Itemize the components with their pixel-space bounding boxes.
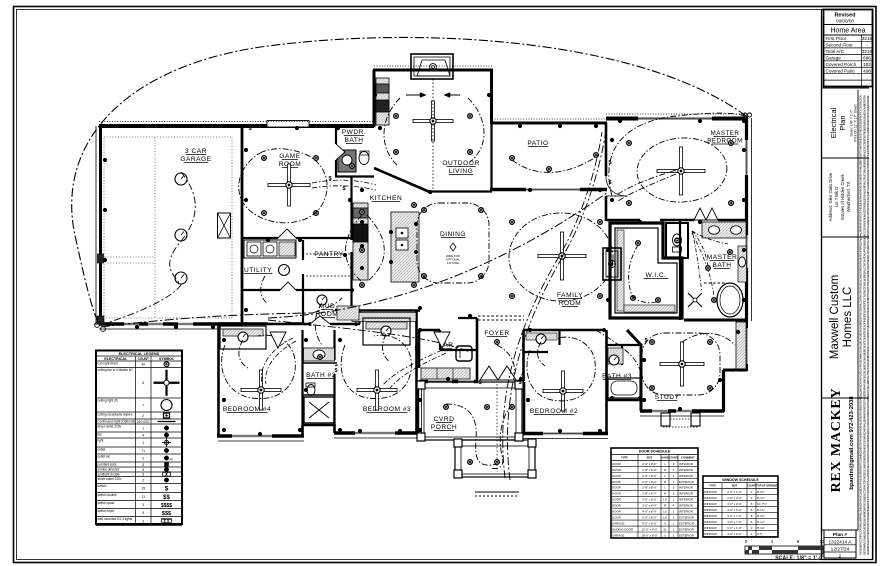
svg-text:ceiling light 30: ceiling light 30 bbox=[98, 399, 118, 403]
svg-text:9: 9 bbox=[142, 468, 144, 472]
svg-text:.: . bbox=[826, 81, 827, 86]
svg-text:DOOR: DOOR bbox=[612, 515, 621, 519]
svg-text:6: 6 bbox=[142, 381, 144, 385]
svg-text:11: 11 bbox=[141, 495, 145, 499]
svg-text:SIZE: SIZE bbox=[647, 456, 653, 460]
svg-text:$$$: $$$ bbox=[162, 511, 171, 517]
svg-text:498: 498 bbox=[863, 68, 871, 73]
svg-text:ALL BE BROUGHT TO THE ATTENTIO: ALL BE BROUGHT TO THE ATTENTION OF THE D… bbox=[866, 95, 870, 555]
svg-text:.: . bbox=[866, 81, 867, 86]
svg-text:3 CAR: 3 CAR bbox=[185, 148, 207, 155]
svg-text:DOOR: DOOR bbox=[612, 510, 621, 514]
svg-text:30: 30 bbox=[141, 363, 145, 367]
svg-text:$$: $$ bbox=[163, 495, 170, 501]
svg-text:LX: LX bbox=[663, 515, 667, 519]
svg-text:BEDROOM #4: BEDROOM #4 bbox=[223, 406, 271, 413]
svg-text:DINING: DINING bbox=[440, 231, 466, 238]
svg-text:$: $ bbox=[608, 180, 611, 186]
svg-text:INTERIOR: INTERIOR bbox=[679, 510, 693, 514]
svg-text:TOP OF OPENING: TOP OF OPENING bbox=[756, 485, 777, 488]
svg-text:BATH: BATH bbox=[712, 262, 731, 269]
svg-text:WINDOW: WINDOW bbox=[704, 496, 717, 500]
svg-text:ceiling fan w 4 blades 60: ceiling fan w 4 blades 60 bbox=[98, 368, 133, 372]
svg-text:KITCHEN: KITCHEN bbox=[370, 195, 402, 202]
svg-text:3'-0" x 5'-0": 3'-0" x 5'-0" bbox=[727, 508, 742, 512]
svg-text:BATH #2: BATH #2 bbox=[306, 372, 336, 379]
svg-text:$: $ bbox=[308, 322, 311, 328]
svg-text:$: $ bbox=[518, 380, 521, 386]
svg-text:3'-0" x 8'-0": 3'-0" x 8'-0" bbox=[642, 498, 657, 502]
svg-text:WINDOW: WINDOW bbox=[704, 508, 717, 512]
svg-text:W.I.C.: W.I.C. bbox=[646, 272, 667, 279]
svg-text:COUNT: COUNT bbox=[669, 456, 679, 460]
svg-text:spotlight double: spotlight double bbox=[98, 473, 121, 477]
svg-text:Total A/C: Total A/C bbox=[826, 49, 845, 54]
svg-text:pendant cube: pendant cube bbox=[98, 463, 118, 467]
svg-text:SIZE: SIZE bbox=[732, 485, 738, 488]
svg-text:Maxwell Custom: Maxwell Custom bbox=[829, 275, 841, 359]
svg-text:can light 6inch: can light 6inch bbox=[98, 362, 119, 366]
svg-text:BEDROOM #3: BEDROOM #3 bbox=[363, 406, 411, 413]
svg-text:2'-8" x 8'-0": 2'-8" x 8'-0" bbox=[642, 486, 657, 490]
svg-text:8'-1¾": 8'-1¾" bbox=[757, 496, 765, 500]
svg-text:12'-0" x 8'-0": 12'-0" x 8'-0" bbox=[641, 527, 657, 531]
svg-text:Weatherford, TX: Weatherford, TX bbox=[846, 182, 851, 213]
svg-text:4'-0" x 8'-0": 4'-0" x 8'-0" bbox=[642, 510, 657, 514]
svg-text:WINDOW: WINDOW bbox=[704, 520, 717, 524]
svg-text:BATH: BATH bbox=[344, 137, 363, 144]
svg-text:SL: SL bbox=[663, 527, 667, 531]
svg-text:2'-8" x 8'-0": 2'-8" x 8'-0" bbox=[642, 474, 657, 478]
svg-text:4'-6" x 7'-0": 4'-6" x 7'-0" bbox=[727, 520, 742, 524]
svg-text:00/00/00: 00/00/00 bbox=[836, 19, 854, 24]
svg-text:DOOR: DOOR bbox=[612, 462, 621, 466]
svg-text:First Floor: First Floor bbox=[826, 36, 847, 41]
svg-text:outlet: outlet bbox=[98, 448, 106, 452]
svg-text:bpardm@gmail.com 972-423-20: bpardm@gmail.com 972-423-2038 bbox=[849, 396, 855, 490]
svg-text:DOOR: DOOR bbox=[612, 480, 621, 484]
svg-text:$: $ bbox=[478, 380, 481, 386]
svg-text:2: 2 bbox=[142, 414, 144, 418]
svg-text:Estates of Hidden Creek: Estates of Hidden Creek bbox=[840, 173, 845, 219]
svg-text:Second Floor: Second Floor bbox=[826, 43, 854, 48]
svg-text:EXTERIOR: EXTERIOR bbox=[679, 515, 694, 519]
svg-text:686: 686 bbox=[863, 56, 871, 61]
svg-text:WINDOW: WINDOW bbox=[704, 514, 717, 518]
svg-text:R: R bbox=[664, 468, 666, 472]
svg-text:Electrical: Electrical bbox=[829, 107, 838, 138]
svg-text:INTERIOR: INTERIOR bbox=[679, 468, 693, 472]
svg-text:LX: LX bbox=[663, 510, 667, 514]
svg-text:CVRD: CVRD bbox=[434, 416, 455, 423]
svg-text:Covered Porch: Covered Porch bbox=[826, 62, 857, 67]
svg-text:LX: LX bbox=[663, 498, 667, 502]
svg-text:EXTERIOR: EXTERIOR bbox=[679, 521, 694, 525]
svg-text:MASTER: MASTER bbox=[707, 254, 737, 261]
svg-text:$: $ bbox=[602, 328, 605, 334]
svg-text:switch triple: switch triple bbox=[98, 509, 115, 513]
svg-text:3: 3 bbox=[142, 519, 144, 523]
svg-text:8'-1¾": 8'-1¾" bbox=[757, 514, 765, 518]
svg-text:2'-6" x 2'-0": 2'-6" x 2'-0" bbox=[727, 496, 742, 500]
svg-text:12/27/24: 12/27/24 bbox=[831, 547, 850, 553]
svg-text:8'-1¾": 8'-1¾" bbox=[757, 526, 765, 530]
svg-text:3: 3 bbox=[142, 503, 144, 507]
svg-text:Plan #: Plan # bbox=[833, 532, 847, 538]
svg-text:.: . bbox=[826, 75, 827, 80]
svg-text:INTERIOR: INTERIOR bbox=[679, 504, 693, 508]
svg-text:240.000': 240.000' bbox=[137, 420, 150, 424]
svg-text:8'-1¾": 8'-1¾" bbox=[757, 520, 765, 524]
svg-text:DOOR: DOOR bbox=[612, 492, 621, 496]
svg-text:THE GENERAL CONTRACTOR SHALL V: THE GENERAL CONTRACTOR SHALL VERIFY ALL … bbox=[859, 95, 863, 555]
svg-text:2'-6" x 8'-0": 2'-6" x 8'-0" bbox=[642, 468, 657, 472]
svg-text:3'-0" x 8'-0": 3'-0" x 8'-0" bbox=[642, 504, 657, 508]
svg-text:WINDOW: WINDOW bbox=[704, 490, 717, 494]
svg-text:7: 7 bbox=[142, 403, 144, 407]
svg-text:183: 183 bbox=[863, 62, 871, 67]
svg-text:switch: switch bbox=[98, 484, 107, 488]
svg-text:DOOR SCHEDULE: DOOR SCHEDULE bbox=[639, 450, 671, 454]
svg-text:$: $ bbox=[354, 322, 357, 328]
svg-text:smoke detector: smoke detector bbox=[98, 468, 121, 472]
svg-text:$: $ bbox=[165, 486, 169, 493]
svg-text:$$$$: $$$$ bbox=[161, 503, 172, 509]
svg-text:2: 2 bbox=[839, 553, 842, 559]
svg-text:BEDROOM #2: BEDROOM #2 bbox=[530, 408, 578, 415]
svg-text:dryer outlet 220v: dryer outlet 220v bbox=[98, 425, 122, 429]
svg-text:Lot 7 Blk D: Lot 7 Blk D bbox=[834, 187, 839, 207]
svg-text:$: $ bbox=[644, 338, 647, 344]
svg-text:$: $ bbox=[328, 176, 331, 182]
svg-text:DOOR: DOOR bbox=[612, 498, 621, 502]
svg-text:WINDOW: WINDOW bbox=[704, 526, 717, 530]
svg-text:MASTER: MASTER bbox=[711, 130, 740, 137]
svg-text:TYPE: TYPE bbox=[621, 456, 628, 460]
svg-text:6'-0" x 1'-6": 6'-0" x 1'-6" bbox=[727, 526, 742, 530]
svg-text:Home Area: Home Area bbox=[830, 28, 865, 35]
svg-text:Covered Patio: Covered Patio bbox=[826, 68, 856, 73]
svg-text:3: 3 bbox=[142, 473, 144, 477]
svg-text:switch quad: switch quad bbox=[98, 501, 115, 505]
svg-text:COMMENT: COMMENT bbox=[681, 456, 695, 460]
svg-text:DOOR: DOOR bbox=[612, 504, 621, 508]
svg-text:SLIDING DOOR: SLIDING DOOR bbox=[612, 527, 633, 531]
svg-text:OUTDOOR: OUTDOOR bbox=[442, 160, 479, 167]
svg-text:$: $ bbox=[608, 160, 611, 166]
svg-text:15: 15 bbox=[141, 486, 145, 490]
svg-text:INTERIOR: INTERIOR bbox=[679, 462, 693, 466]
svg-text:8'-1¾": 8'-1¾" bbox=[757, 490, 765, 494]
svg-text:wp: wp bbox=[170, 458, 174, 461]
svg-text:Continuous light (Optional): Continuous light (Optional) bbox=[98, 420, 136, 424]
svg-text:SYMBOL: SYMBOL bbox=[159, 357, 175, 361]
svg-text:3'-0" x 7'-0": 3'-0" x 7'-0" bbox=[727, 514, 742, 518]
svg-text:ELECTRICAL: ELECTRICAL bbox=[104, 357, 128, 361]
svg-text:WINDOW SCHEDULE: WINDOW SCHEDULE bbox=[722, 478, 759, 482]
svg-text:ceiling receptacle duplex: ceiling receptacle duplex bbox=[98, 413, 133, 417]
svg-text:BEDROOM: BEDROOM bbox=[707, 137, 742, 144]
svg-text:PATIO: PATIO bbox=[527, 140, 548, 147]
svg-text:WINDOW: WINDOW bbox=[704, 502, 717, 506]
svg-text:ESE DRAWINGS SHALL BE CHECKED: ESE DRAWINGS SHALL BE CHECKED AND VERIFI… bbox=[863, 95, 867, 555]
svg-text:R: R bbox=[664, 492, 666, 496]
svg-text:2'-8" x 8'-0": 2'-8" x 8'-0" bbox=[642, 480, 657, 484]
svg-text:REX MACKEY: REX MACKEY bbox=[829, 388, 844, 493]
svg-text:3216: 3216 bbox=[862, 36, 873, 41]
svg-text:FIXTURE: FIXTURE bbox=[447, 261, 459, 265]
svg-text:71: 71 bbox=[141, 449, 145, 453]
svg-text:2'-4" x 8'-0": 2'-4" x 8'-0" bbox=[642, 462, 657, 466]
svg-text:2: 2 bbox=[142, 456, 144, 460]
svg-text:6'-0" x 8'-0": 6'-0" x 8'-0" bbox=[642, 515, 657, 519]
svg-text:ELECTRICAL LEGEND: ELECTRICAL LEGEND bbox=[119, 352, 160, 356]
svg-text:GAME: GAME bbox=[279, 153, 301, 160]
svg-text:2'-8" x 8'-0": 2'-8" x 8'-0" bbox=[642, 492, 657, 496]
svg-text:10'-7½": 10'-7½" bbox=[757, 502, 767, 506]
svg-text:3'-0" x 2'-0": 3'-0" x 2'-0" bbox=[727, 532, 742, 536]
svg-text:TYPE: TYPE bbox=[709, 485, 716, 488]
svg-text:INTERIOR: INTERIOR bbox=[679, 492, 693, 496]
svg-text:EXTERIOR: EXTERIOR bbox=[679, 527, 694, 531]
svg-text:3'-0" x 2'-0": 3'-0" x 2'-0" bbox=[727, 502, 742, 506]
svg-text:R: R bbox=[664, 504, 666, 508]
svg-text:Plan: Plan bbox=[838, 115, 847, 130]
svg-text:GARAGE: GARAGE bbox=[612, 533, 624, 537]
svg-text:EXTERIOR: EXTERIOR bbox=[679, 480, 694, 484]
svg-text:INTERIOR: INTERIOR bbox=[679, 486, 693, 490]
svg-text:fan: fan bbox=[98, 433, 103, 437]
svg-text:18'-0" x 8'-0": 18'-0" x 8'-0" bbox=[641, 533, 657, 537]
svg-text:DOOR: DOOR bbox=[612, 468, 621, 472]
svg-text:$: $ bbox=[342, 186, 345, 192]
svg-text:3216: 3216 bbox=[862, 49, 873, 54]
svg-text:$: $ bbox=[244, 322, 247, 328]
svg-text:INTERIOR: INTERIOR bbox=[679, 498, 693, 502]
svg-text:INTERIOR: INTERIOR bbox=[679, 474, 693, 478]
svg-text:1: 1 bbox=[142, 441, 144, 445]
svg-text:GARAGE: GARAGE bbox=[180, 156, 211, 163]
svg-text:Homes LLC: Homes LLC bbox=[842, 287, 854, 348]
svg-text:$: $ bbox=[248, 126, 251, 132]
svg-text:9'-0" x 8'-0": 9'-0" x 8'-0" bbox=[642, 521, 657, 525]
svg-text:Print On 11" X 17" Sheet: Print On 11" X 17" Sheet bbox=[854, 104, 858, 141]
svg-text:DOOR: DOOR bbox=[612, 474, 621, 478]
svg-text:BATH #3: BATH #3 bbox=[602, 373, 632, 380]
svg-text:DOOR: DOOR bbox=[612, 486, 621, 490]
svg-text:2'-6": 2'-6" bbox=[757, 532, 763, 536]
svg-text:switch double: switch double bbox=[98, 493, 118, 497]
svg-text:.: . bbox=[866, 75, 867, 80]
svg-text:$: $ bbox=[334, 368, 337, 374]
svg-text:5: 5 bbox=[142, 511, 144, 515]
svg-text:stove outlet 220v: stove outlet 220v bbox=[98, 477, 123, 481]
svg-text:3: 3 bbox=[142, 463, 144, 467]
svg-text:4: 4 bbox=[142, 433, 144, 437]
svg-text:LIVING: LIVING bbox=[449, 168, 474, 175]
svg-text:HAND: HAND bbox=[661, 456, 669, 460]
svg-text:GARAGE: GARAGE bbox=[612, 521, 624, 525]
svg-text:12: 12 bbox=[819, 539, 825, 544]
svg-text:wall mounted D1 3 lights: wall mounted D1 3 lights bbox=[98, 517, 133, 521]
svg-text:$: $ bbox=[414, 346, 417, 352]
svg-text:PANTRY: PANTRY bbox=[314, 251, 343, 258]
svg-text:2: 2 bbox=[142, 478, 144, 482]
svg-text:PWDR.: PWDR. bbox=[342, 129, 366, 136]
svg-text:R: R bbox=[664, 480, 666, 484]
svg-text:outlet wp: outlet wp bbox=[98, 455, 111, 459]
svg-text:COUNT: COUNT bbox=[138, 357, 149, 361]
svg-text:PORCH: PORCH bbox=[431, 424, 457, 431]
svg-text:light: light bbox=[98, 439, 104, 443]
svg-text:8'-1¾": 8'-1¾" bbox=[757, 508, 765, 512]
svg-text:EXTERIOR: EXTERIOR bbox=[679, 533, 694, 537]
svg-text:WINDOW: WINDOW bbox=[704, 532, 717, 536]
svg-text:COUNT: COUNT bbox=[747, 485, 756, 488]
svg-text:Address: Glen Oaks Drive: Address: Glen Oaks Drive bbox=[828, 172, 833, 221]
svg-text:Garage: Garage bbox=[826, 56, 842, 61]
svg-text:1: 1 bbox=[142, 426, 144, 430]
svg-text:FOYER: FOYER bbox=[484, 330, 509, 337]
svg-text:2'-6" x 1'-0": 2'-6" x 1'-0" bbox=[727, 490, 742, 494]
svg-text:UTILITY: UTILITY bbox=[244, 267, 272, 274]
svg-text:FAMILY: FAMILY bbox=[557, 292, 583, 299]
svg-text:SCALE: 1/8" = 1'-0": SCALE: 1/8" = 1'-0" bbox=[775, 556, 825, 562]
